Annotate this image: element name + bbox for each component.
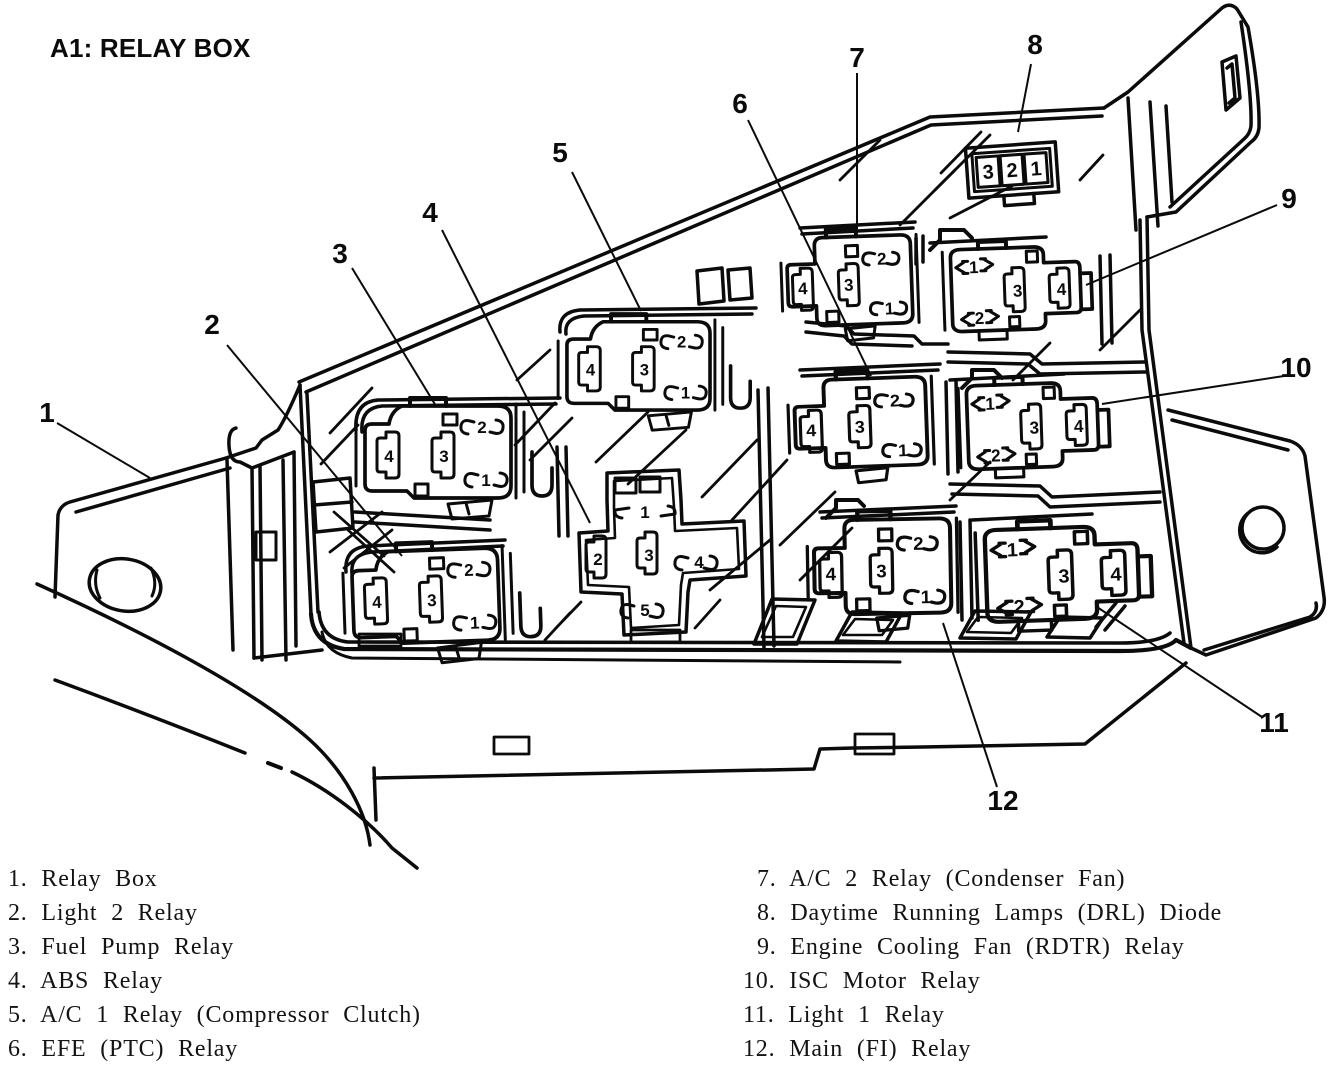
svg-text:4: 4	[422, 197, 438, 228]
svg-text:10. ISC Motor Relay: 10. ISC Motor Relay	[743, 968, 981, 994]
svg-text:3. Fuel Pump Relay: 3. Fuel Pump Relay	[8, 934, 234, 960]
svg-text:7. A/C 2 Relay (Condenser Fan): 7. A/C 2 Relay (Condenser Fan)	[757, 866, 1125, 892]
svg-text:1. Relay Box: 1. Relay Box	[8, 866, 158, 892]
svg-text:12: 12	[987, 785, 1018, 816]
svg-text:9. Engine Cooling Fan (RDTR) R: 9. Engine Cooling Fan (RDTR) Relay	[757, 934, 1185, 960]
svg-text:3: 3	[644, 546, 653, 565]
svg-text:12. Main (FI) Relay: 12. Main (FI) Relay	[743, 1036, 971, 1062]
svg-text:6: 6	[732, 88, 748, 119]
svg-text:3: 3	[982, 161, 995, 184]
svg-text:2: 2	[593, 550, 602, 569]
svg-text:11. Light 1 Relay: 11. Light 1 Relay	[743, 1002, 945, 1028]
svg-text:2: 2	[1006, 160, 1019, 183]
svg-text:11: 11	[1259, 707, 1289, 738]
svg-text:7: 7	[849, 42, 865, 73]
svg-text:1: 1	[640, 503, 649, 522]
svg-text:A1: RELAY BOX: A1: RELAY BOX	[50, 33, 251, 63]
svg-text:2. Light 2 Relay: 2. Light 2 Relay	[8, 900, 198, 926]
svg-text:1: 1	[39, 397, 55, 428]
svg-text:10: 10	[1280, 352, 1311, 383]
svg-text:9: 9	[1281, 183, 1297, 214]
svg-text:8. Daytime Running Lamps (DRL): 8. Daytime Running Lamps (DRL) Diode	[757, 900, 1222, 926]
svg-text:5: 5	[552, 137, 568, 168]
svg-text:5: 5	[640, 601, 649, 620]
svg-text:6. EFE (PTC) Relay: 6. EFE (PTC) Relay	[8, 1036, 238, 1062]
svg-text:4: 4	[694, 553, 704, 572]
svg-text:3: 3	[332, 238, 348, 269]
svg-text:4. ABS Relay: 4. ABS Relay	[8, 968, 163, 994]
svg-text:5. A/C 1 Relay (Compressor Clu: 5. A/C 1 Relay (Compressor Clutch)	[8, 1002, 421, 1028]
svg-text:2: 2	[204, 309, 220, 340]
svg-text:1: 1	[1030, 158, 1043, 181]
svg-text:8: 8	[1027, 29, 1043, 60]
